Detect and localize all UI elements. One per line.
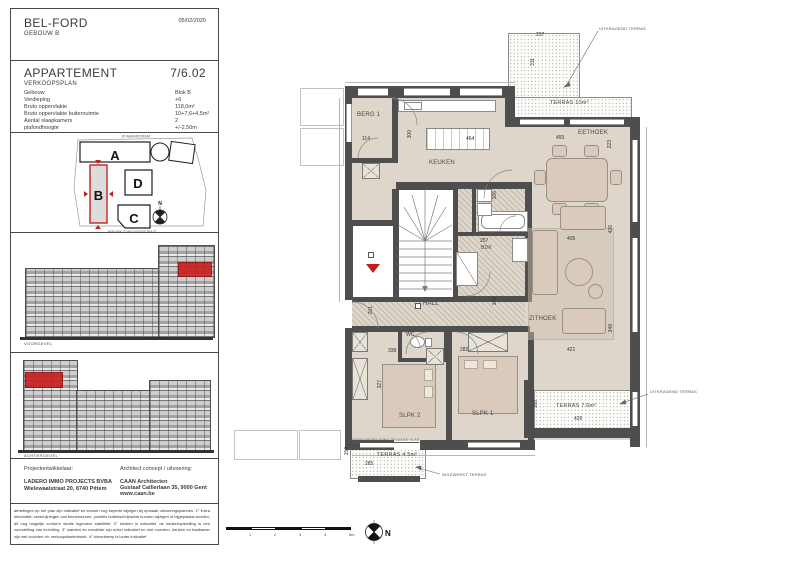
dim-eethoek-height: 223 [607,140,613,148]
dim-hall-width: 201 [368,306,374,314]
dim-terras76-width: 426 [574,416,582,422]
north-letter: N [158,201,162,207]
north-compass: N [362,518,398,548]
spec-label: Gebouw [24,90,45,96]
dim-berg1-width: 114 [362,136,370,142]
block-a-label: A [110,148,120,163]
block-d-label: D [133,176,142,191]
spec-value: Blok B [175,90,191,96]
drawing-sheet: BEL-FORD GEBOUW B 05/02/2020 APPARTEMENT… [0,0,800,565]
room-label-eethoek: EETHOEK [578,130,608,136]
hall-icon [415,303,421,309]
site-shape [151,143,169,161]
project-title: BEL-FORD [24,16,88,30]
dim-terras45-width: 285 [365,461,373,467]
developer-label: Projectontwikkelaar: [24,466,73,472]
spec-value: 10+7,6+4,5m² [175,111,209,117]
dim-terras76-height: 160 [533,400,539,408]
elevation-front-caption: VOORGEVEL [24,341,53,346]
dim-zithoek-height: 426 [608,225,614,233]
dim-terras10-width: 237 [536,32,544,38]
developer-name: LADERO IMMO PROJECTS BVBA [24,479,112,485]
dim-zithoek-width: 405 [567,236,575,242]
dim-island-width: 464 [466,136,474,142]
site-shape [169,141,195,163]
scale-tick: 2 [274,532,276,537]
annotation-recessed-terrace: INGEWERKT TERRAS [442,472,487,477]
elevation-front-tower [158,245,215,338]
spec-value: 2 [175,118,178,124]
date: 05/02/2020 [158,18,206,24]
spec-label: Bruto oppervlakte buitenruimte [24,111,99,117]
scale-segment [326,527,351,530]
room-label-hall: HALL [423,301,439,307]
dim-zithoek-height2: 348 [608,324,614,332]
annotation-railing-note: DOORVALBEVEILIGING GELAAGD GLAS [348,438,419,442]
elevation-back-right [149,380,211,452]
spec-value: +6 [175,97,181,103]
sheet-title: APPARTEMENT [24,66,117,80]
elevation-front-unit-highlight [178,262,212,277]
developer-address: Wielewaalstraat 20, 8740 Pittem [24,486,107,492]
block-c-label: C [129,211,139,226]
dim-slpk2-height: 327 [377,380,383,388]
scale-segment [301,527,326,530]
dim-eethoek-width: 493 [556,135,564,141]
room-label-berg2: BERG 2 [486,182,506,188]
building-subtitle: GEBOUW B [24,31,59,37]
marker-triangle [84,191,88,197]
scale-tick: 4 [324,532,326,537]
siteplan-north-compass: N [153,201,167,224]
street-label-top: ST-AMANDSTRAAT [122,135,151,139]
spec-value: 118,0m² [175,104,195,110]
elevation-front-main [25,268,160,338]
room-label-terras10: TERRAS 10m² [550,100,589,106]
spec-label: plafondhoogte [24,125,59,131]
dim-terras45-height: 154 [344,447,350,455]
north-letter: N [385,529,391,538]
door-arc-entrance [352,302,378,328]
room-label-berg1: BERG 1 [357,112,380,118]
room-label-slpk2: SLPK 2 [399,413,421,419]
sheet-subtitle: VERKOOPSPLAN [24,81,77,87]
dim-hall-height: 100 [492,297,498,305]
scale-tick: 1 [249,532,251,537]
scale-tick: 5m [349,532,355,537]
spec-label: Aantal slaapkamers [24,118,72,124]
room-label-zithoek: ZITHOEK [529,316,556,322]
elevation-back-caption: ACHTERGEVEL [24,453,58,458]
dim-keuken-height: 300 [407,130,413,138]
dim-zithoek-width2: 421 [567,347,575,353]
divider [10,503,218,504]
door-arc-kitchen [390,98,417,125]
dim-berg2-height: 106 [492,191,498,199]
annotation-cantilever-terrace-top: UITKRAGEND TERRAS [599,26,646,31]
room-label-keuken: KEUKEN [429,160,455,166]
dim-terras10-height: 311 [530,58,536,66]
plan-linework [230,20,700,500]
unit-number: 7/6.02 [140,66,206,80]
architect-label: Architect concept / uitvoering: [120,466,192,472]
room-label-terras45: TERRAS 4.5m² [377,452,417,458]
block-b-label: B [94,188,103,203]
door-arc-bathroom [466,272,490,296]
dim-slpk2-width: 338 [388,348,396,354]
elevation-back-unit-highlight [25,372,63,388]
spec-value: +/-2,50m [175,125,197,131]
marker-triangle [109,191,113,197]
divider [10,132,218,133]
divider [10,458,218,459]
scale-bar: 1 2 3 4 5m [226,527,356,537]
ground-line [20,337,213,340]
marker-triangle [95,225,101,229]
divider [10,352,218,353]
room-label-slpk1: SLPK 1 [472,411,494,417]
spec-label: Verdieping [24,97,50,103]
scale-segment [226,527,251,530]
architect-url: www.caan.be [120,491,155,497]
spec-label: Bruto oppervlakte [24,104,67,110]
street-label-bottom: HENDRIK CONSCIENCESTRAAT [108,230,157,234]
scale-segment [251,527,276,530]
site-plan: A B D C ST-AMANDSTRAAT HENDRIK CONSCIENC… [60,134,210,234]
annotation-cantilever-terrace-right: UITKRAGEND TERRAS [650,389,697,394]
disclaimer-text: afmetingen op het plan zijn indicatief e… [14,508,210,540]
room-label-wc: WC [406,332,415,338]
scale-tick: 3 [299,532,301,537]
room-label-terras76: TERRAS 7.6m² [556,403,596,409]
dim-bdk-width: 257 [480,238,488,244]
elevation-back-main [76,390,151,452]
door-arc-berg2 [500,216,516,232]
scale-segment [276,527,301,530]
dim-slpk1-width: 282 [460,347,468,353]
divider [10,60,218,61]
room-label-bdk: BDK [481,245,492,251]
